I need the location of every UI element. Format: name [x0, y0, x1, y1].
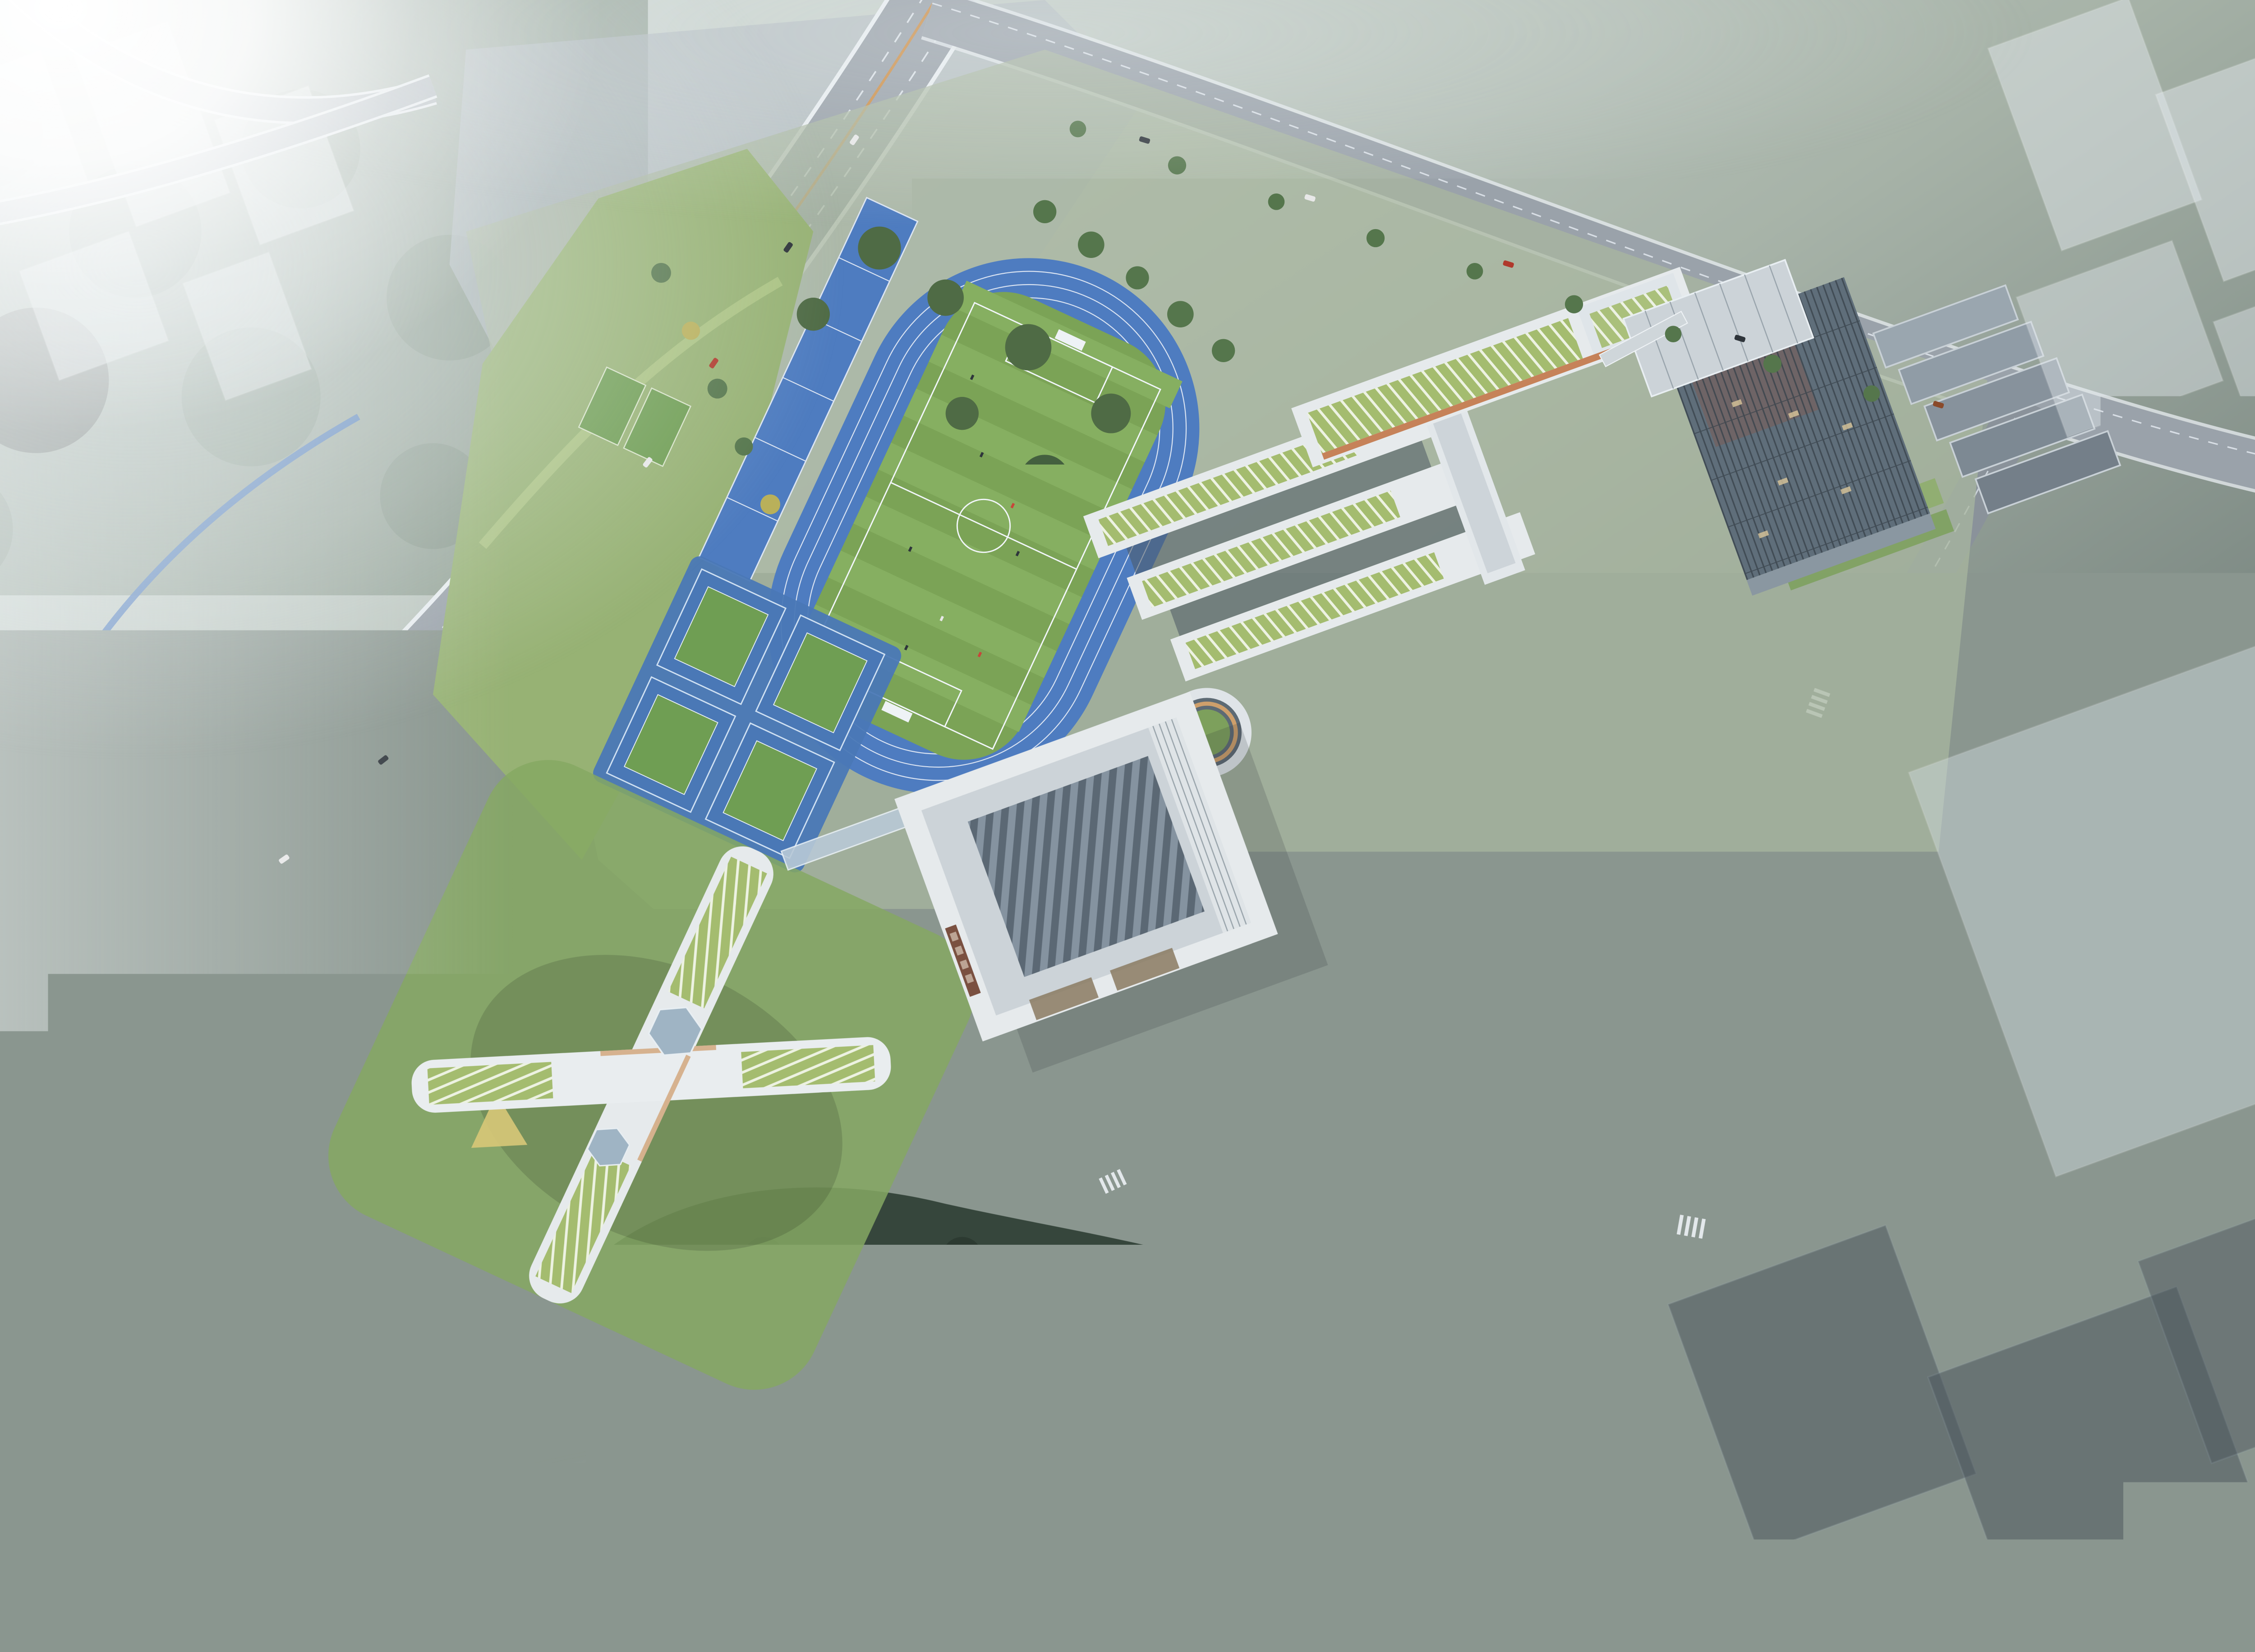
aerial-campus-render: 實 温州市实验中学: [0, 0, 2255, 1652]
